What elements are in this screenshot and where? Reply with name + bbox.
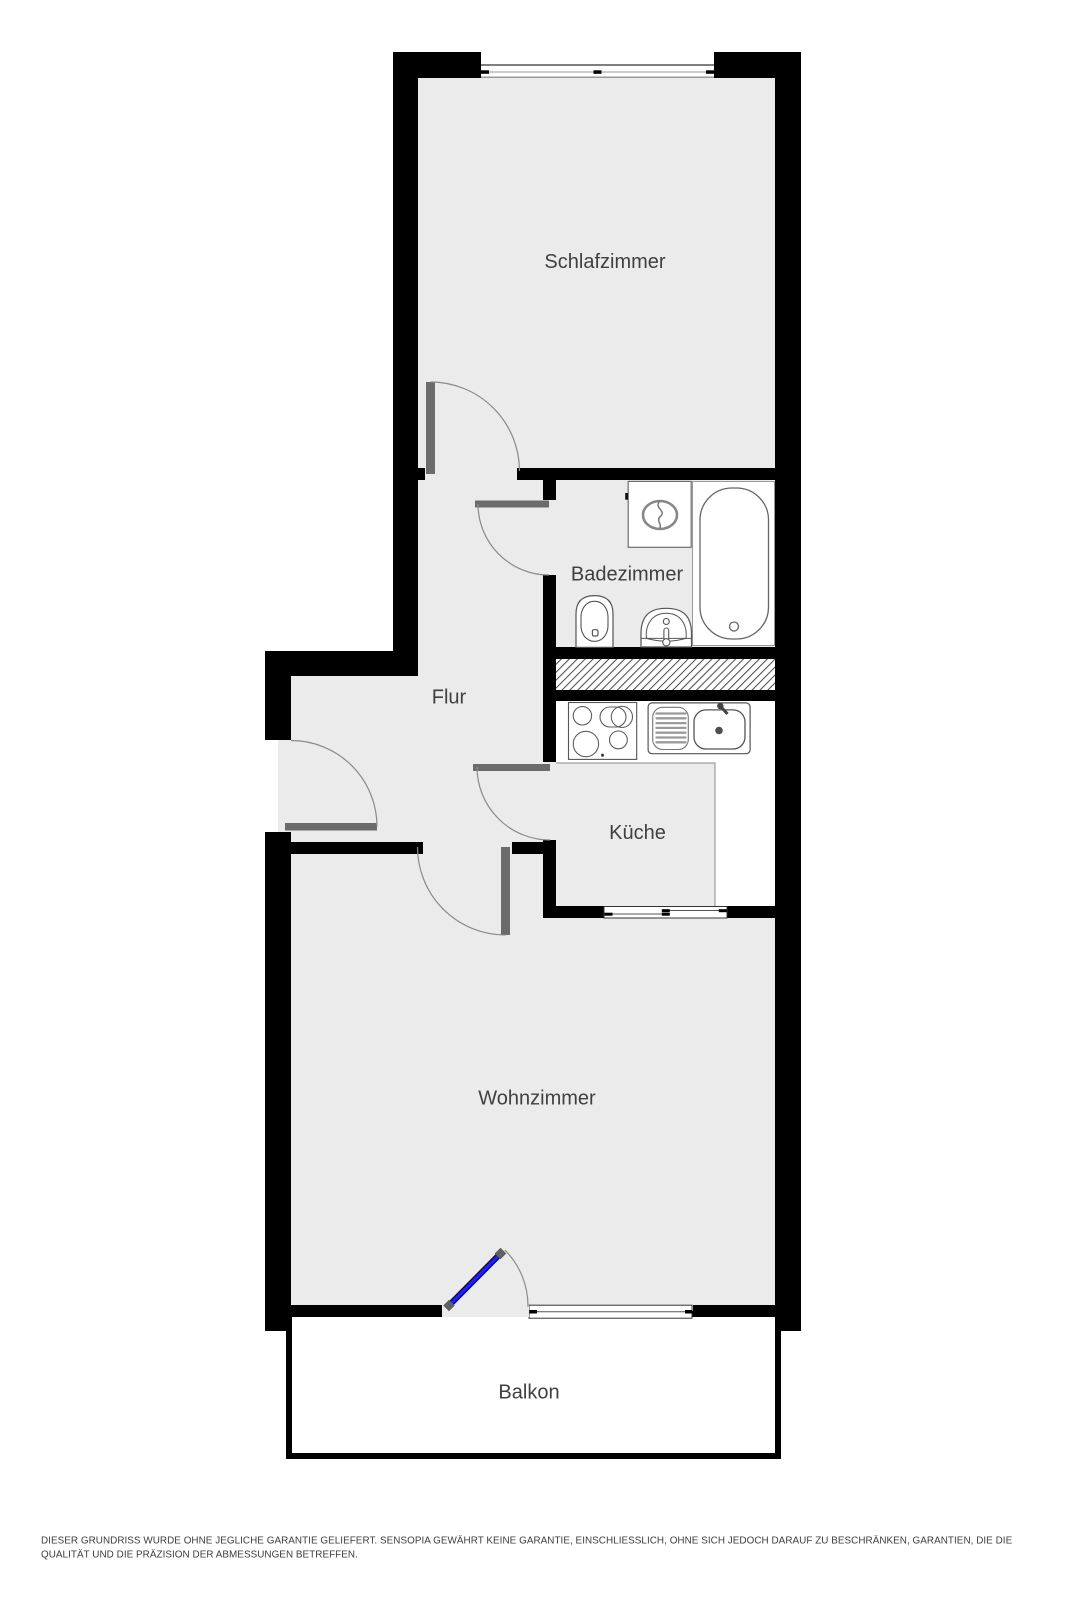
svg-text:Wohnzimmer: Wohnzimmer (478, 1088, 596, 1110)
svg-text:Badezimmer: Badezimmer (571, 564, 684, 586)
svg-text:QUALITÄT UND DIE PRÄZISION DER: QUALITÄT UND DIE PRÄZISION DER ABMESSUNG… (41, 1550, 358, 1561)
svg-text:Schlafzimmer: Schlafzimmer (544, 251, 665, 273)
svg-text:Flur: Flur (432, 687, 467, 709)
svg-text:DIESER GRUNDRISS WURDE OHNE JE: DIESER GRUNDRISS WURDE OHNE JEGLICHE GAR… (41, 1536, 1013, 1547)
svg-text:Balkon: Balkon (498, 1382, 559, 1404)
svg-text:Küche: Küche (609, 822, 666, 844)
